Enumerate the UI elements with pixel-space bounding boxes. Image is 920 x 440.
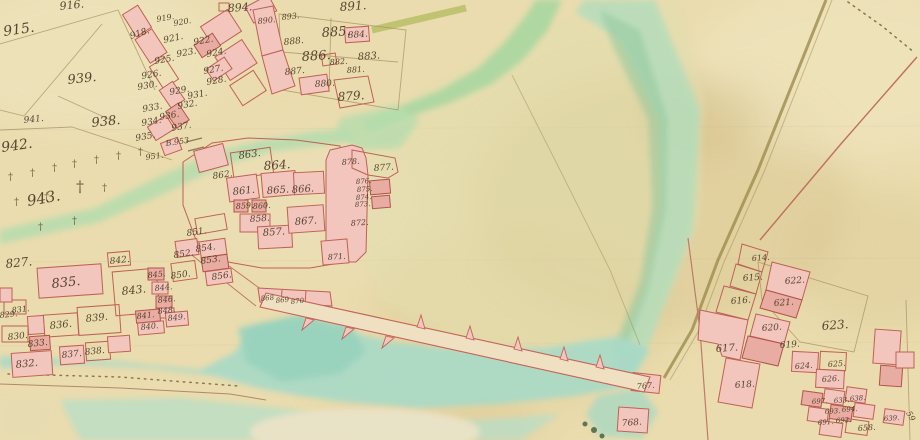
parcel-label-869: 869 xyxy=(275,296,290,305)
parcel-label-639: 639. xyxy=(884,414,900,423)
parcel-label-877: 877. xyxy=(374,163,395,174)
parcel-label-868: 868 xyxy=(260,294,275,303)
parcel-label-623: 623. xyxy=(821,317,849,333)
building xyxy=(0,288,12,302)
parcel-label-691: 691. xyxy=(818,418,834,427)
cross-mark: † xyxy=(8,172,13,183)
parcel-label-887: 887. xyxy=(284,66,305,78)
building xyxy=(27,315,44,334)
parcel-label-846: 846. xyxy=(157,294,176,305)
parcel-label-768: 768. xyxy=(622,418,643,429)
parcel-label-614: 614. xyxy=(752,253,770,263)
cross-mark: † xyxy=(116,151,121,162)
cross-mark: † xyxy=(76,177,84,196)
parcel-label-842: 842. xyxy=(109,255,130,267)
parcel-label-833: 833. xyxy=(27,338,48,350)
parcel-label-620: 620. xyxy=(762,323,783,334)
cross-mark: † xyxy=(38,222,43,233)
parcel-label-837: 837. xyxy=(61,349,82,361)
parcel-label-941: 941. xyxy=(23,114,44,126)
parcel-label-873: 873. xyxy=(355,200,371,209)
cross-mark: † xyxy=(30,168,35,179)
parcel-label-839: 839. xyxy=(85,312,108,325)
parcel-label-831: 831. xyxy=(11,304,30,315)
map-canvas: ††††††††††††† 915.916.894.891.939.938.94… xyxy=(0,0,920,440)
parcel-label-884: 884. xyxy=(348,30,369,41)
parcel-label-830: 830. xyxy=(7,331,28,343)
parcel-label-888: 888. xyxy=(283,36,304,48)
cross-mark: † xyxy=(94,155,99,166)
parcel-label-890: 890. xyxy=(257,15,276,26)
cadastral-map-scan: ††††††††††††† 915.916.894.891.939.938.94… xyxy=(0,0,920,440)
cross-mark: † xyxy=(102,183,107,194)
parcel-label-864: 864. xyxy=(263,157,291,173)
parcel-label-638: 638. xyxy=(850,394,866,403)
cross-mark: † xyxy=(14,197,19,208)
parcel-label-866: 866. xyxy=(291,183,314,196)
parcel-label-694: 694. xyxy=(842,405,858,414)
parcel-label-622: 622. xyxy=(785,276,806,287)
parcel-label-858: 858. xyxy=(250,214,271,225)
parcel-label-882: 882. xyxy=(330,57,348,67)
parcel-label-692: 692. xyxy=(836,416,852,425)
building xyxy=(372,195,391,209)
parcel-label-619: 619. xyxy=(780,340,801,351)
parcel-label-867: 867. xyxy=(294,215,317,228)
parcel-label-836: 836. xyxy=(49,319,72,332)
parcel-label-767: 767. xyxy=(637,381,655,391)
parcel-label-845: 845. xyxy=(147,269,166,280)
parcel-label-838: 838. xyxy=(84,346,105,358)
cross-mark: † xyxy=(72,159,77,170)
parcel-label-633: 633. xyxy=(834,396,850,405)
parcel-label-893: 893. xyxy=(281,11,300,22)
parcel-label-860: 860. xyxy=(253,201,271,211)
parcel-label-865: 865. xyxy=(266,184,289,197)
parcel-label-616: 616. xyxy=(731,296,752,307)
parcel-label-844: 844. xyxy=(154,282,173,293)
parcel-label-870: 870 xyxy=(290,297,305,306)
parcel-label-621: 621. xyxy=(774,298,795,309)
parcel-label-871: 871. xyxy=(328,252,346,262)
parcel-label-849: 849. xyxy=(167,312,186,323)
parcel-label-883: 883. xyxy=(357,50,380,63)
parcel-label-827: 827. xyxy=(5,254,33,271)
parcel-label-939: 939. xyxy=(67,70,97,88)
parcel-label-841: 841. xyxy=(136,310,155,321)
parcel-label-881: 881. xyxy=(347,65,365,75)
cross-mark: † xyxy=(52,163,57,174)
parcel-label-857: 857. xyxy=(262,226,285,239)
parcel-label-894: 894. xyxy=(227,0,252,15)
parcel-label-880: 880. xyxy=(315,79,336,90)
parcel-label-835: 835. xyxy=(51,274,81,292)
parcel-label-891: 891. xyxy=(339,0,367,14)
parcel-label-658: 658. xyxy=(858,423,876,433)
parcel-label-697: 697. xyxy=(812,397,828,406)
parcel-label-878: 878. xyxy=(342,157,360,167)
parcel-label-832: 832. xyxy=(15,358,38,371)
parcel-label-843: 843. xyxy=(121,282,147,297)
parcel-label-872: 872. xyxy=(351,218,369,228)
parcel-label-879: 879. xyxy=(337,88,365,104)
parcel-label-624: 624. xyxy=(795,361,813,371)
parcel-label-618: 618. xyxy=(735,380,756,391)
parcel-label-693: 693. xyxy=(825,407,841,416)
building xyxy=(107,335,130,352)
parcel-label-625: 625. xyxy=(828,359,846,369)
parcel-label-861: 861. xyxy=(232,185,255,198)
parcel-label-626: 626. xyxy=(822,374,840,384)
parcel-label-886: 886. xyxy=(301,48,331,65)
parcel-label-859: 859. xyxy=(236,201,254,211)
cross-mark: † xyxy=(138,147,143,158)
parcel-label-938: 938. xyxy=(91,113,121,131)
parcel-label-840: 840. xyxy=(140,321,159,332)
parcel-label-617: 617. xyxy=(715,342,738,355)
cross-mark: † xyxy=(72,216,77,227)
parcel-label-615: 615. xyxy=(743,273,764,284)
building xyxy=(896,352,914,368)
